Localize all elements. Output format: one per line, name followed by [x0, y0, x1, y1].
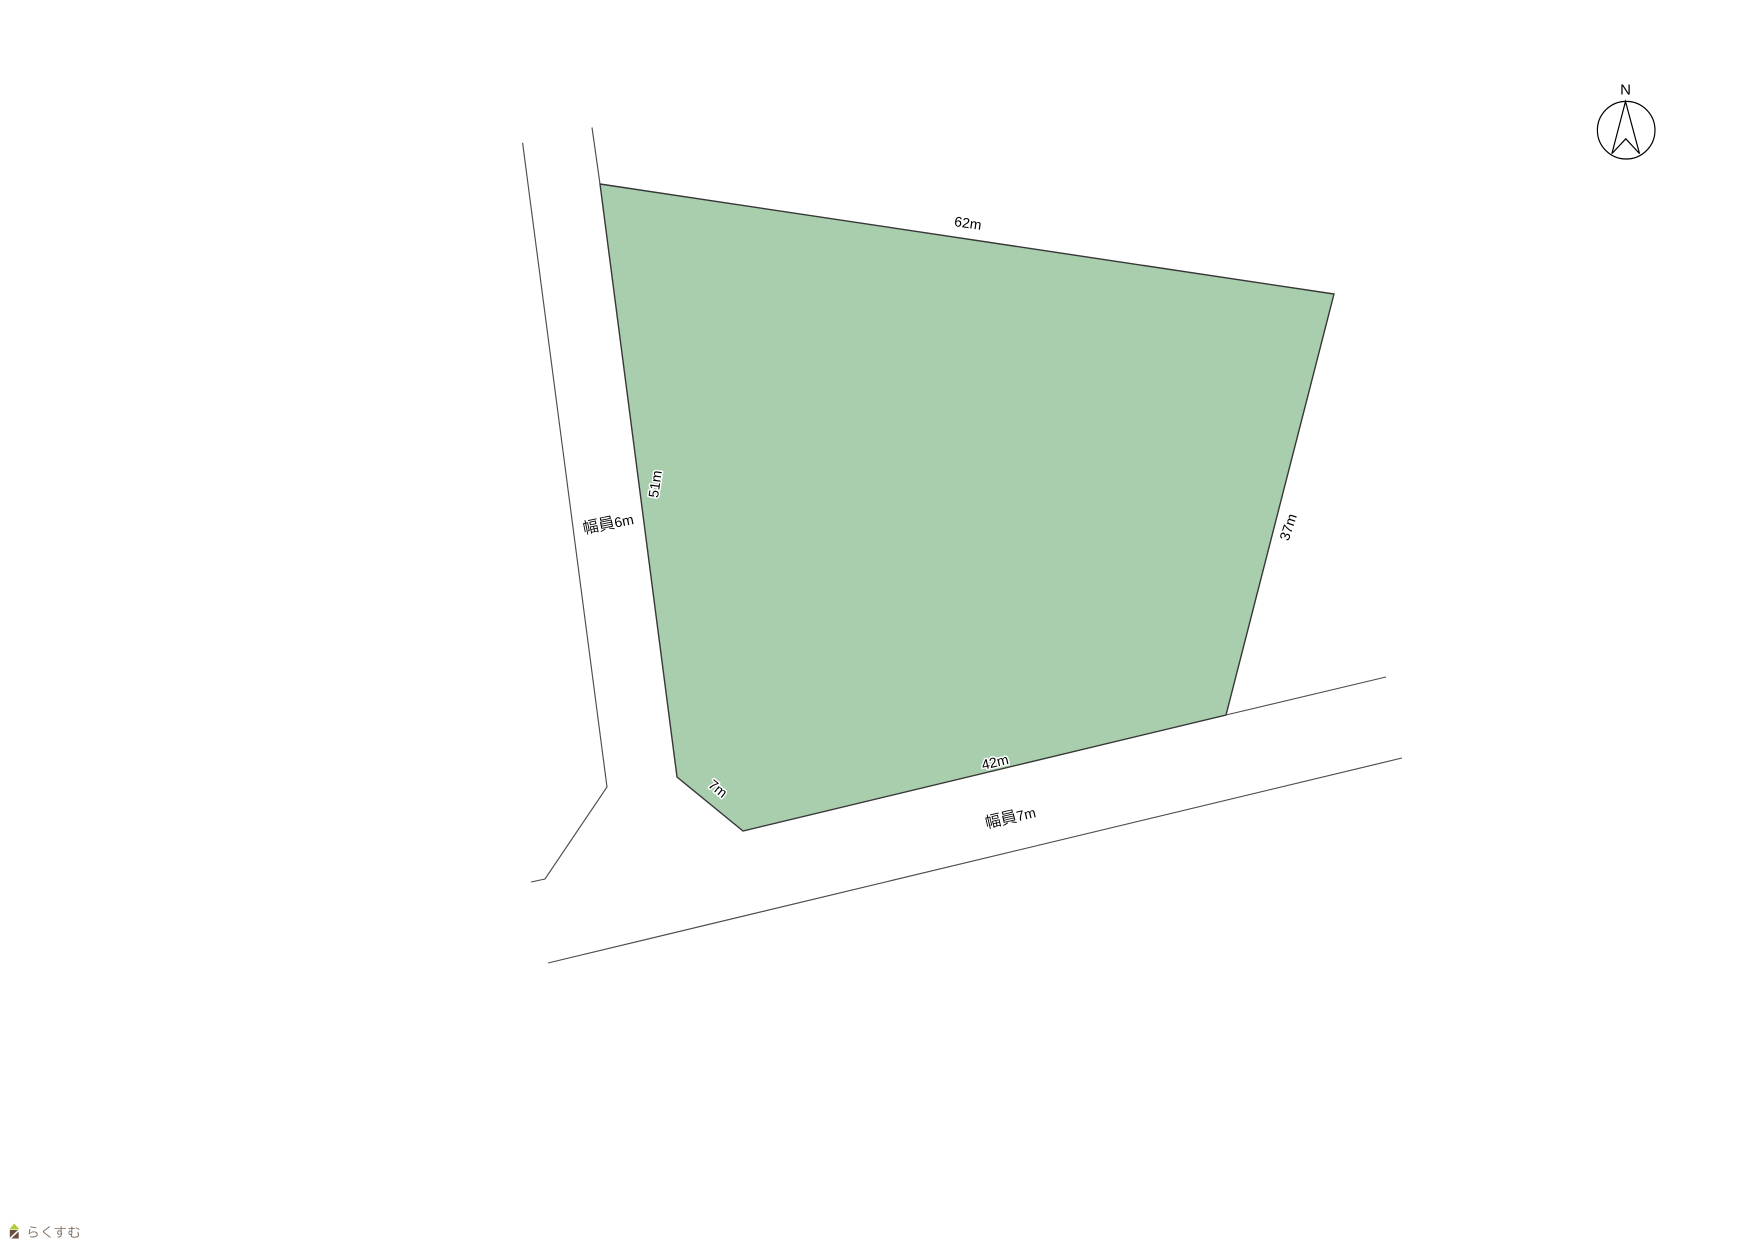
svg-text:N: N: [1620, 81, 1631, 98]
